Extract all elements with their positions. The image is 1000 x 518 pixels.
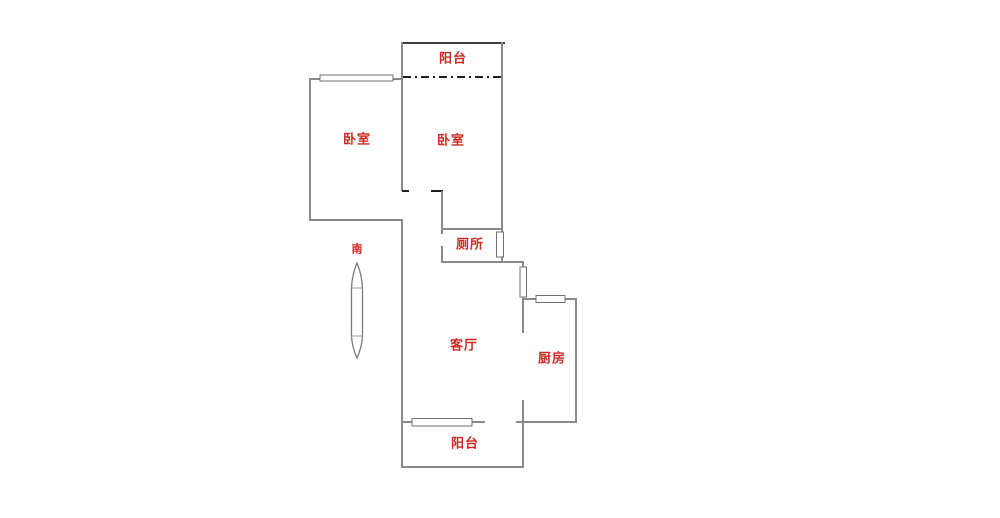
window-balcony-bottom bbox=[412, 419, 472, 427]
window-living-kitchen bbox=[520, 267, 527, 297]
room-label-bedroom-left: 卧室 bbox=[343, 134, 371, 147]
south-compass-needle bbox=[352, 263, 363, 358]
room-label-toilet: 厕所 bbox=[456, 239, 484, 252]
room-label-balcony-top: 阳台 bbox=[439, 53, 467, 66]
room-label-living-room: 客厅 bbox=[450, 340, 478, 353]
floor-plan: 阳台 卧室 卧室 厕所 南 客厅 厨房 阳台 bbox=[0, 0, 1000, 518]
window-toilet bbox=[497, 232, 504, 257]
window-bedroom-left bbox=[320, 75, 393, 81]
room-label-bedroom-right: 卧室 bbox=[437, 135, 465, 148]
compass-south-label: 南 bbox=[352, 244, 363, 255]
room-label-balcony-bottom: 阳台 bbox=[451, 438, 479, 451]
floor-plan-drawing bbox=[0, 0, 1000, 518]
window-kitchen bbox=[536, 296, 565, 303]
room-label-kitchen: 厨房 bbox=[538, 353, 566, 366]
